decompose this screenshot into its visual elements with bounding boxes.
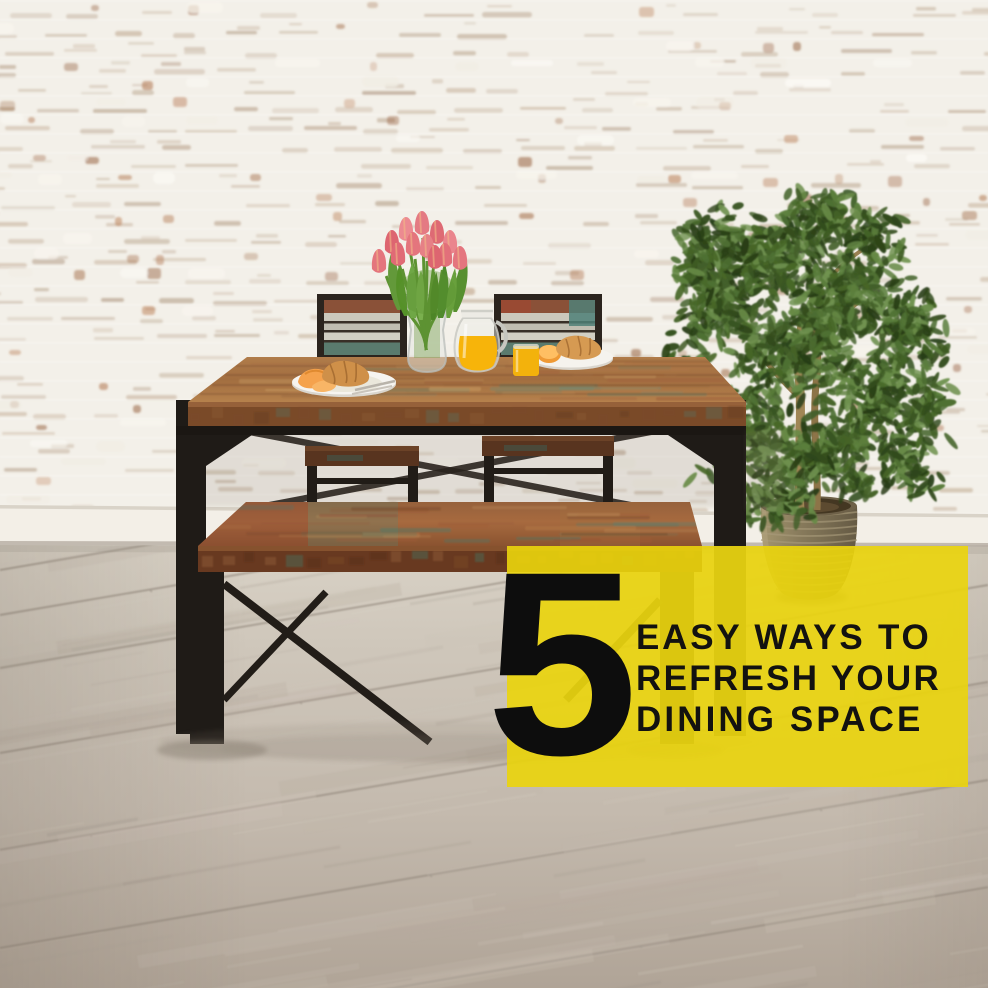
svg-text:DINING SPACE: DINING SPACE — [636, 700, 923, 739]
svg-text:EASY WAYS TO: EASY WAYS TO — [636, 618, 932, 657]
svg-text:REFRESH YOUR: REFRESH YOUR — [636, 659, 941, 698]
svg-text:5: 5 — [486, 516, 638, 809]
